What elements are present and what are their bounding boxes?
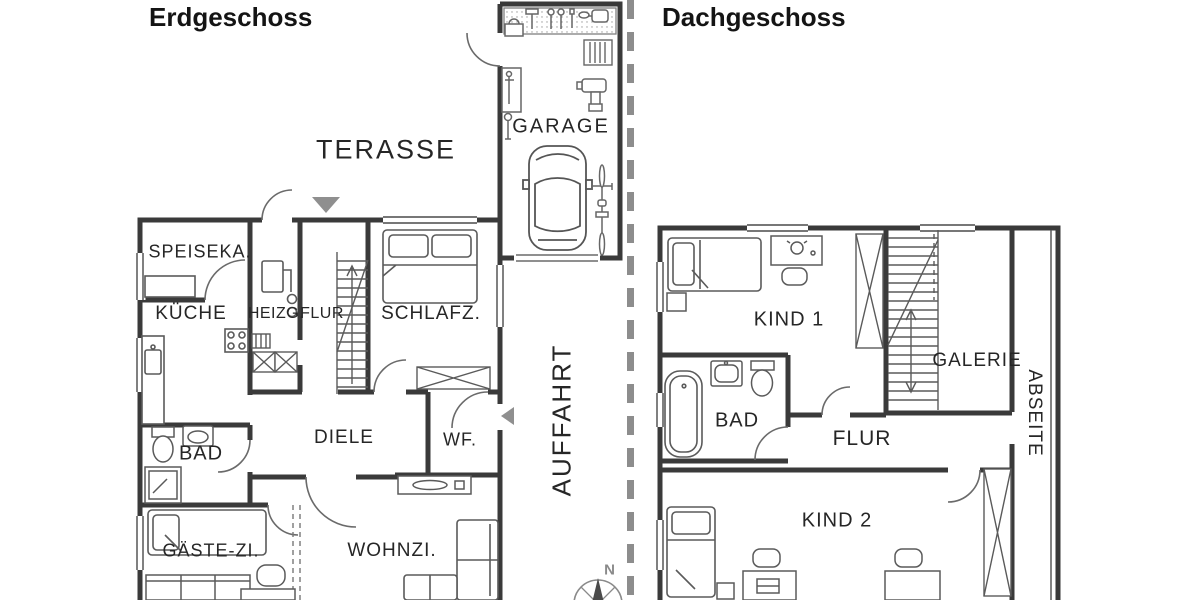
room-label-garage: GARAGE: [512, 116, 610, 139]
shower-icon: [145, 467, 181, 503]
ground-floor-plan: [135, 4, 621, 600]
entrance-arrow-icon: [312, 197, 340, 213]
attic-floor-title: Dachgeschoss: [662, 2, 846, 33]
wardrobe-icon: [417, 367, 490, 389]
attic-stairs-icon: [888, 230, 938, 410]
heating-shaft-icon: [252, 334, 297, 372]
floor-plan-drawing: [0, 0, 1200, 600]
drill-icon: [577, 79, 606, 111]
room-label-child1: KIND 1: [754, 309, 824, 332]
child1-bed-icon: [668, 238, 761, 291]
room-label-terrace: TERASSE: [316, 135, 456, 166]
child2-desk2-icon: [885, 549, 940, 600]
room-label-bath-dg: BAD: [715, 410, 759, 433]
kitchen-counter-icon: [142, 329, 248, 424]
bicycle-icon: [592, 165, 612, 255]
room-label-hallway-dg: FLUR: [833, 427, 892, 451]
stairs-icon: [337, 252, 368, 394]
room-label-bedroom: SCHLAFZ.: [381, 303, 481, 325]
room-label-hallway-eg: FLUR: [300, 305, 344, 323]
nightstand-icon: [667, 293, 686, 311]
child2-side-table-icon: [717, 583, 734, 599]
child2-wardrobe-icon: [984, 469, 1011, 596]
room-label-guest-room: GÄSTE-ZI.: [162, 541, 259, 562]
sofa-icon: [146, 575, 250, 600]
wrench-icon: [505, 114, 512, 140]
toilet-icon: [152, 427, 174, 462]
floor-plan-page: Erdgeschoss Dachgeschoss TERASSE GARAGE …: [0, 0, 1200, 600]
radio-icon: [584, 40, 612, 65]
plan-divider-dashed-line: [627, 0, 634, 600]
room-label-child2: KIND 2: [802, 510, 872, 533]
room-label-gallery: GALERIE: [932, 350, 1021, 372]
room-label-utility: WF.: [443, 430, 477, 451]
sideboard-icon: [398, 476, 471, 494]
child1-desk-icon: [771, 236, 822, 285]
room-label-bath-eg: BAD: [179, 443, 223, 466]
room-label-kitchen: KÜCHE: [155, 303, 227, 325]
double-bed-icon: [383, 230, 477, 303]
room-label-pantry: SPEISEKA.: [148, 242, 251, 263]
child1-wardrobe-icon: [856, 234, 883, 348]
garage-door: [516, 255, 598, 261]
room-label-heating: HEIZG.: [248, 305, 304, 323]
attic-sink-icon: [711, 361, 742, 386]
room-label-hall: DIELE: [314, 427, 374, 449]
room-label-driveway: AUFFAHRT: [547, 344, 578, 497]
car-icon: [523, 146, 592, 250]
compass-icon: [574, 578, 622, 600]
room-label-living-room: WOHNZI.: [347, 540, 436, 562]
bathtub-icon: [665, 371, 702, 457]
room-label-eaves: ABSEITE: [1023, 369, 1045, 456]
attic-toilet-icon: [751, 361, 774, 396]
ground-floor-title: Erdgeschoss: [149, 2, 312, 33]
workbench-icon: [502, 68, 521, 112]
child2-desk1-icon: [743, 549, 796, 600]
child2-bed-icon: [667, 507, 715, 597]
open-partition-dashed: [293, 505, 300, 600]
pantry-shelf-icon: [145, 276, 195, 297]
compass-north-label: N: [604, 562, 616, 579]
